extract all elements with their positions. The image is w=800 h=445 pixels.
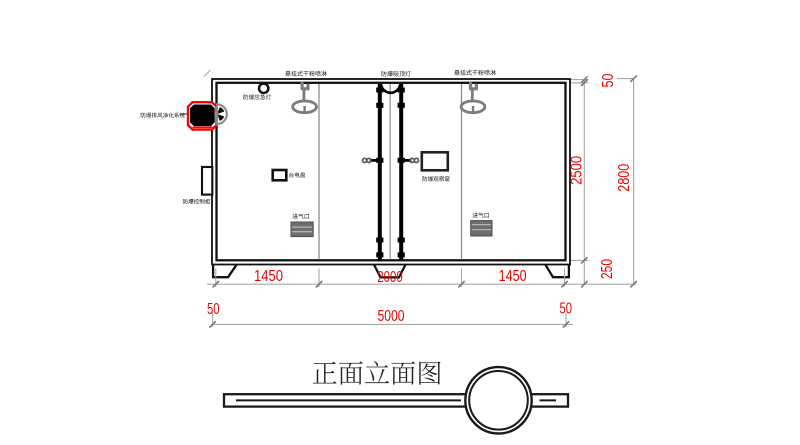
svg-text:5000: 5000 — [378, 308, 405, 325]
svg-text:2800: 2800 — [616, 164, 633, 192]
svg-text:50: 50 — [559, 301, 572, 318]
svg-text:50: 50 — [207, 301, 220, 318]
svg-text:2000: 2000 — [377, 269, 403, 286]
svg-text:2500: 2500 — [569, 156, 586, 185]
svg-text:50: 50 — [600, 73, 617, 87]
svg-text:1450: 1450 — [254, 268, 283, 285]
svg-text:250: 250 — [599, 259, 616, 279]
svg-text:1450: 1450 — [499, 268, 527, 285]
